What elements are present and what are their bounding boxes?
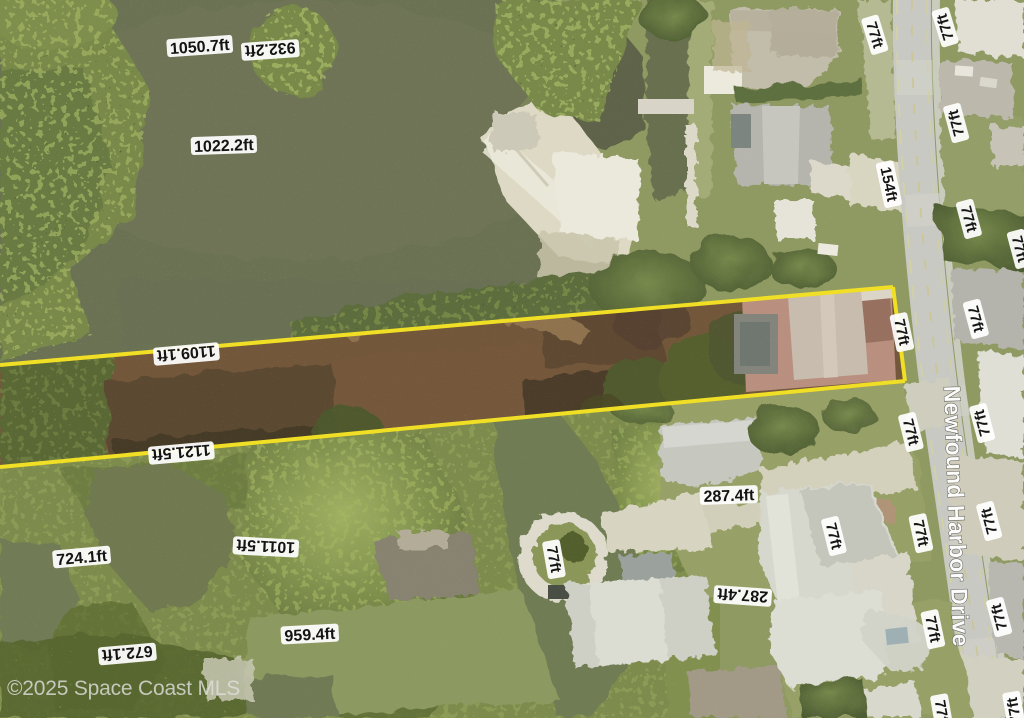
svg-text:77ft: 77ft [931, 699, 952, 718]
svg-text:287.4ft: 287.4ft [703, 487, 755, 506]
svg-text:959.4ft: 959.4ft [284, 626, 336, 646]
svg-text:1011.5ft: 1011.5ft [235, 535, 295, 555]
svg-text:932.2ft: 932.2ft [244, 38, 296, 59]
svg-text:1022.2ft: 1022.2ft [194, 137, 255, 156]
svg-text:287.4ft: 287.4ft [716, 584, 768, 605]
svg-text:©2025 Space Coast MLS: ©2025 Space Coast MLS [7, 677, 240, 700]
svg-text:77ft: 77ft [1004, 696, 1024, 718]
